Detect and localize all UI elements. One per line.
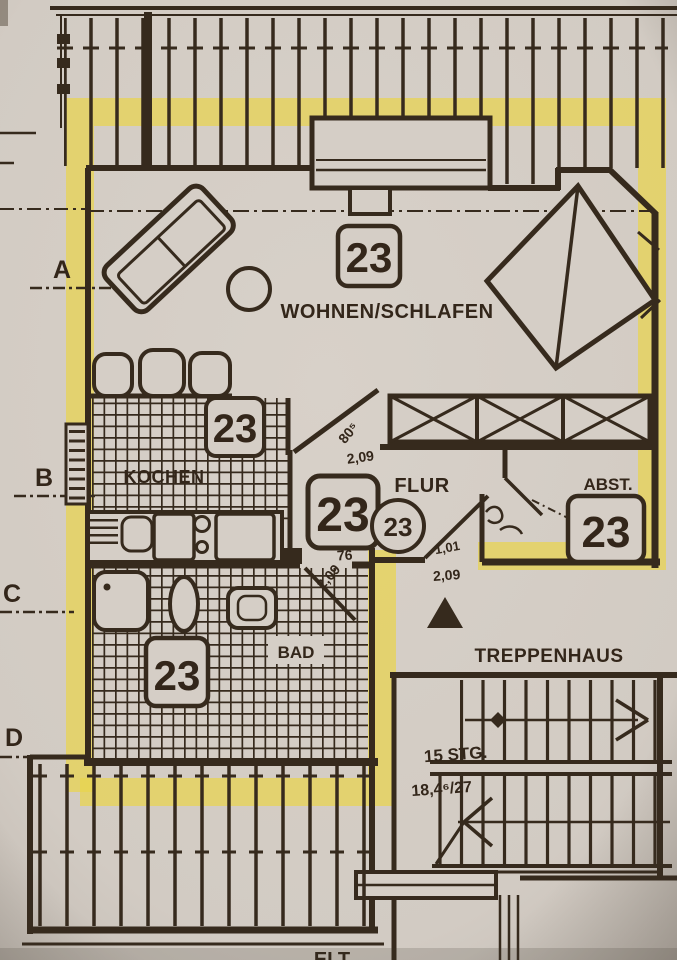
floor-plan-svg: 23 23 23 23 23 23 WOHNEN/SCHLAFEN KOCHEN… — [0, 0, 677, 960]
floor-plan-photo: 23 23 23 23 23 23 WOHNEN/SCHLAFEN KOCHEN… — [0, 0, 677, 960]
photo-vignette — [0, 0, 677, 960]
bottom-edge-shadow — [0, 948, 677, 960]
